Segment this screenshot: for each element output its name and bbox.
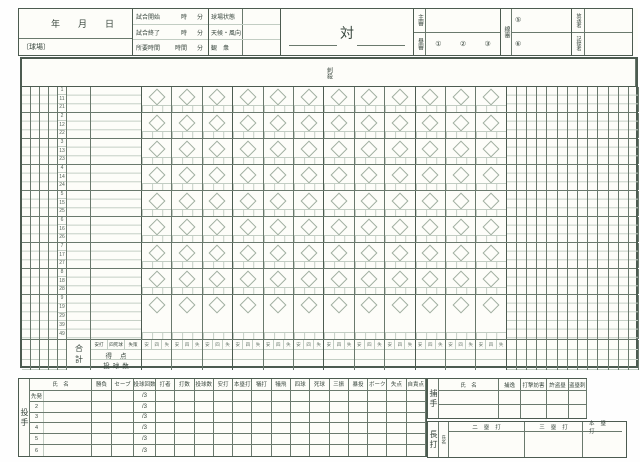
pitcher-stat-cell	[252, 434, 271, 444]
position-cell	[67, 269, 91, 294]
batting-stat-cell	[578, 295, 588, 339]
pitcher-table-main: 氏 名勝負セーブ投球回数打者打数投球数安打本塁打犠打犠飛四球死球三振暴投ボーク失…	[30, 379, 426, 456]
at-bat-cell	[294, 269, 324, 294]
at-bat-cell	[233, 87, 263, 112]
order-number: 29	[58, 313, 66, 322]
diamond-icon	[300, 219, 317, 236]
batting-stat-cell	[578, 243, 588, 268]
batting-stat-cell	[609, 165, 619, 190]
at-bat-cell	[142, 139, 172, 164]
fielding-stat-cell	[49, 191, 58, 216]
count-subrow	[476, 183, 505, 190]
at-bat-cell	[294, 165, 324, 190]
catcher-stat-cell	[569, 405, 587, 419]
batting-stat-cell	[558, 139, 568, 164]
count-subrow	[446, 157, 475, 164]
line-umpire-label: 線審	[501, 9, 512, 55]
pitcher-save-cell	[112, 445, 134, 456]
at-bat-cell	[264, 87, 294, 112]
diamond-icon	[270, 219, 287, 236]
fielding-stat-cell	[49, 165, 58, 190]
count-subrow	[264, 105, 293, 112]
diamond-icon	[179, 115, 196, 132]
count-subrow	[324, 105, 353, 112]
at-bat-cell	[324, 269, 354, 294]
diamond-icon	[482, 193, 499, 210]
pitcher-stat-cell	[310, 413, 329, 423]
summary-right-cell	[598, 340, 608, 370]
catcher-table: 捕手 氏 名捕逸打撃妨害許盗塁盗塁刺	[427, 378, 587, 419]
count-subrow	[172, 332, 201, 339]
batting-stat-cell	[537, 269, 547, 294]
summary-right-cell	[619, 340, 629, 370]
batting-slot-row: 81828	[22, 269, 636, 295]
at-bat-cell	[264, 165, 294, 190]
diamond-icon	[148, 297, 165, 314]
pitcher-wl-cell	[92, 402, 112, 412]
count-subrow	[142, 261, 171, 268]
batting-stat-cell	[598, 243, 608, 268]
catcher-col-header: 捕逸	[499, 379, 521, 390]
tick-label: 四	[152, 340, 162, 349]
batting-stat-cell	[568, 139, 578, 164]
batting-stat-cell	[629, 113, 639, 138]
pitcher-stat-cell	[330, 423, 349, 433]
position-cell	[67, 243, 91, 268]
long-hit-col: 三塁打	[525, 422, 583, 457]
count-subrow	[142, 105, 171, 112]
summary-inning-col: 安四失	[264, 340, 294, 370]
at-bat-cell	[294, 191, 324, 216]
catcher-row	[439, 405, 587, 419]
fielding-stat-cell	[22, 295, 31, 339]
diamond-icon	[270, 297, 287, 314]
summary-legend-col: 安打四死球失策得点投球数	[91, 340, 142, 370]
at-bat-cell	[233, 165, 263, 190]
summary-inning-col: 安四失	[476, 340, 506, 370]
pitcher-stat-cell	[349, 391, 368, 401]
at-bat-cell	[142, 87, 172, 112]
at-bat-cell	[446, 217, 476, 242]
at-bat-cell	[416, 217, 446, 242]
count-subrow	[355, 332, 384, 339]
inning-score-cell	[385, 350, 414, 360]
position-cell	[67, 87, 91, 112]
batting-stat-cell	[537, 113, 547, 138]
at-bat-cell	[233, 243, 263, 268]
batter-name-cell	[91, 139, 142, 164]
diamond-icon	[209, 141, 226, 158]
game-time-label: 試合終了	[136, 28, 166, 37]
at-bat-cell	[142, 269, 172, 294]
condition-label: 観 衆	[209, 40, 243, 55]
batting-slot-row: 31323	[22, 139, 636, 165]
count-subrow	[264, 131, 293, 138]
diamond-icon	[179, 219, 196, 236]
count-subrow	[385, 131, 414, 138]
batting-stat-cell	[588, 243, 598, 268]
at-bat-cell	[203, 113, 233, 138]
count-subrow	[172, 235, 201, 242]
diamond-icon	[179, 297, 196, 314]
batting-stat-cell	[588, 191, 598, 216]
catcher-col-header: 盗塁刺	[569, 379, 587, 390]
tick-label: 失	[193, 340, 202, 349]
batting-stat-cell	[547, 87, 557, 112]
count-subrow	[416, 157, 445, 164]
diamond-icon	[239, 271, 256, 288]
diamond-icon	[300, 167, 317, 184]
position-cell	[67, 295, 91, 339]
batting-stat-cell	[568, 165, 578, 190]
count-subrow	[446, 209, 475, 216]
batting-stat-cell	[527, 139, 537, 164]
diamond-icon	[148, 245, 165, 262]
pitcher-col-header: 犠打	[252, 379, 271, 390]
batting-stat-cell	[537, 191, 547, 216]
at-bat-cell	[324, 139, 354, 164]
count-subrow	[294, 131, 323, 138]
batting-stat-cell	[568, 87, 578, 112]
at-bat-cell	[385, 295, 415, 339]
at-bat-cell	[324, 295, 354, 339]
at-bat-cell	[324, 165, 354, 190]
tick-label: 安	[142, 340, 152, 349]
diamond-icon	[239, 89, 256, 106]
pitcher-col-header: 暴投	[349, 379, 368, 390]
count-subrow	[385, 332, 414, 339]
inning-pitch-count-cell	[446, 360, 475, 370]
pitcher-row: 6/3	[30, 445, 426, 456]
batter-name-cell	[91, 243, 142, 268]
fielding-stat-cell	[31, 165, 40, 190]
condition-row: 球場状態	[209, 9, 280, 25]
recorders-box: 放送者 記録者	[571, 8, 633, 56]
diamond-icon	[422, 245, 439, 262]
summary-right-cell	[568, 340, 578, 370]
diamond-icon	[209, 297, 226, 314]
order-number: 4	[58, 165, 66, 173]
summary-right-cell	[527, 340, 537, 370]
summary-inning-col: 安四失	[355, 340, 385, 370]
count-subrow	[142, 183, 171, 190]
at-bat-cell	[142, 295, 172, 339]
diamond-icon	[239, 193, 256, 210]
base-umpire-3: ③	[485, 40, 491, 48]
batting-stat-cell	[588, 269, 598, 294]
diamond-icon	[300, 89, 317, 106]
tick-label: 失	[223, 340, 232, 349]
diamond-icon	[391, 219, 408, 236]
count-subrow	[172, 131, 201, 138]
diamond-icon	[331, 219, 348, 236]
pitcher-stat-cell	[214, 434, 233, 444]
at-bat-cell	[264, 269, 294, 294]
long-hits-main: 氏名 二塁打三塁打本塁打	[439, 422, 626, 457]
long-hits-side-label: 長打	[428, 422, 439, 457]
fielding-stat-cell	[22, 269, 31, 294]
pitcher-stat-cell	[291, 413, 310, 423]
at-bat-cell	[385, 165, 415, 190]
count-subrow	[385, 235, 414, 242]
diamond-icon	[179, 89, 196, 106]
pitcher-wl-cell	[92, 413, 112, 423]
position-cell	[67, 191, 91, 216]
catcher-stat-cell	[439, 391, 499, 404]
diamond-icon	[361, 271, 378, 288]
tick-label: 四	[304, 340, 314, 349]
count-subrow	[446, 131, 475, 138]
year-label: 年	[51, 17, 60, 30]
pitcher-stat-cell	[310, 391, 329, 401]
batting-stat-cell	[578, 113, 588, 138]
position-cell	[67, 113, 91, 138]
diamond-icon	[391, 297, 408, 314]
at-bat-cell	[172, 139, 202, 164]
order-number: 16	[58, 225, 66, 233]
batting-stat-cell	[568, 243, 578, 268]
diamond-icon	[422, 115, 439, 132]
fielding-stat-cell	[31, 113, 40, 138]
fielding-stat-cell	[31, 243, 40, 268]
diamond-icon	[452, 193, 469, 210]
fielding-stat-cell	[31, 295, 40, 339]
count-subrow	[294, 287, 323, 294]
order-number: 2	[58, 113, 66, 121]
score-grid: 刺殺補殺失策併殺打順シート先攻123456789101112打席数打数得点安打打…	[20, 57, 638, 368]
order-number: 17	[58, 251, 66, 259]
at-bat-cell	[172, 217, 202, 242]
catcher-col-header: 許盗塁	[547, 379, 569, 390]
minute-unit-label: 分	[197, 12, 203, 21]
at-bat-cell	[476, 243, 506, 268]
pitcher-stat-cell	[175, 391, 194, 401]
count-subrow	[446, 183, 475, 190]
long-hits-name-label: 氏名	[439, 422, 449, 457]
batting-order-cell: 71727	[58, 243, 67, 268]
pitcher-stat-cell	[272, 391, 291, 401]
diamond-icon	[482, 271, 499, 288]
batting-stat-cell	[507, 243, 517, 268]
at-bat-cell	[446, 87, 476, 112]
inning-score-cell	[233, 350, 262, 360]
catcher-stat-cell	[569, 391, 587, 404]
batting-order-cell: 81828	[58, 269, 67, 294]
batting-stat-cell	[507, 269, 517, 294]
left-stat-header: 補殺	[636, 59, 640, 86]
base-umpire-numbers: ① ② ③	[426, 33, 500, 56]
batting-stat-cell	[609, 217, 619, 242]
fielding-stat-cell	[40, 269, 49, 294]
batting-stat-cell	[578, 217, 588, 242]
pitcher-stat-cell	[291, 423, 310, 433]
diamond-icon	[422, 141, 439, 158]
inning-pitch-count-cell	[355, 360, 384, 370]
diamond-icon	[239, 245, 256, 262]
inning-score-cell	[142, 350, 171, 360]
diamond-icon	[361, 89, 378, 106]
diamond-icon	[361, 141, 378, 158]
inning-pitch-count-cell	[385, 360, 414, 370]
batting-stat-cell	[527, 191, 537, 216]
pitcher-stat-cell	[330, 434, 349, 444]
batting-stat-cell	[629, 165, 639, 190]
batting-stat-cell	[547, 243, 557, 268]
game-time-row: 所要時間時間分	[133, 40, 208, 55]
date-row: 年 月 日	[19, 9, 132, 39]
count-subrow	[172, 287, 201, 294]
fielding-stat-cell	[31, 269, 40, 294]
count-subrow	[264, 183, 293, 190]
fielding-stat-cell	[22, 191, 31, 216]
diamond-icon	[422, 193, 439, 210]
count-subrow	[142, 332, 171, 339]
versus-label: 対	[340, 23, 354, 43]
diamond-icon	[482, 245, 499, 262]
fielding-stat-cell	[22, 87, 31, 112]
summary-stat-cell	[31, 340, 40, 370]
legend-label: 安打	[91, 340, 108, 349]
order-number: 3	[58, 139, 66, 147]
game-time-row: 試合終了時分	[133, 25, 208, 41]
count-subrow	[294, 209, 323, 216]
pitcher-stat-cell	[291, 434, 310, 444]
team1-underline	[289, 45, 337, 46]
game-time-label: 試合開始	[136, 12, 166, 21]
pitcher-stat-cell	[387, 423, 406, 433]
pitcher-save-cell	[112, 413, 134, 423]
pitcher-stat-cell	[368, 423, 387, 433]
at-bat-cell	[233, 217, 263, 242]
batting-stat-cell	[558, 113, 568, 138]
batter-name-cell	[91, 269, 142, 294]
pitcher-stat-cell	[214, 423, 233, 433]
fielding-stat-cell	[31, 191, 40, 216]
batting-slot-row: 71727	[22, 243, 636, 269]
inning-pitch-count-cell	[142, 360, 171, 370]
diamond-icon	[482, 141, 499, 158]
at-bat-cell	[324, 191, 354, 216]
at-bat-cell	[355, 295, 385, 339]
batting-slot-row: 21222	[22, 113, 636, 139]
order-number: 28	[58, 286, 66, 294]
batting-stat-cell	[568, 295, 578, 339]
at-bat-cell	[172, 87, 202, 112]
at-bat-cell	[324, 243, 354, 268]
count-subrow	[476, 105, 505, 112]
batting-stat-cell	[507, 139, 517, 164]
at-bat-cell	[476, 191, 506, 216]
diamond-icon	[300, 297, 317, 314]
count-subrow	[476, 157, 505, 164]
long-hit-header: 三塁打	[525, 422, 582, 432]
diamond-icon	[452, 115, 469, 132]
batting-stat-cell	[619, 191, 629, 216]
batting-slot-row: 11121	[22, 87, 636, 113]
batting-stat-cell	[547, 139, 557, 164]
order-number: 11	[58, 95, 66, 103]
batting-stat-cell	[558, 191, 568, 216]
pitcher-stat-cell	[407, 402, 426, 412]
at-bat-cell	[416, 243, 446, 268]
batting-stat-cell	[598, 139, 608, 164]
pitcher-stat-cell	[156, 445, 175, 456]
stadium-row: 〔球場〕	[19, 39, 132, 55]
catcher-col-header: 氏 名	[439, 379, 499, 390]
batting-stat-cell	[547, 295, 557, 339]
batting-stat-cell	[527, 165, 537, 190]
fielding-stat-cell	[40, 113, 49, 138]
at-bat-cell	[142, 217, 172, 242]
fielding-stat-cell	[22, 217, 31, 242]
pitcher-ip-cell: /3	[134, 445, 156, 456]
count-subrow	[476, 235, 505, 242]
inning-score-cell	[264, 350, 293, 360]
diamond-icon	[209, 89, 226, 106]
order-number: 39	[58, 321, 66, 330]
batting-stat-cell	[547, 217, 557, 242]
pitcher-stat-cell	[175, 423, 194, 433]
count-subrow	[233, 157, 262, 164]
batter-name-cell	[91, 87, 142, 112]
tick-label: 四	[213, 340, 223, 349]
fielding-stat-cell	[31, 139, 40, 164]
count-subrow	[385, 261, 414, 268]
diamond-icon	[179, 193, 196, 210]
count-subrow	[416, 105, 445, 112]
summary-right-cell	[547, 340, 557, 370]
count-subrow	[142, 235, 171, 242]
batting-stat-cell	[558, 165, 568, 190]
diamond-icon	[209, 115, 226, 132]
summary-inning-col: 安四失	[416, 340, 446, 370]
at-bat-cell	[142, 191, 172, 216]
diamond-icon	[361, 193, 378, 210]
pitcher-stat-cell	[349, 413, 368, 423]
at-bat-cell	[324, 113, 354, 138]
batting-stat-cell	[507, 191, 517, 216]
pitcher-stat-cell	[387, 445, 406, 456]
diamond-icon	[270, 167, 287, 184]
order-number: 24	[58, 182, 66, 190]
at-bat-cell	[355, 243, 385, 268]
count-subrow	[233, 209, 262, 216]
at-bat-cell	[142, 165, 172, 190]
order-number: 23	[58, 156, 66, 164]
catcher-stat-cell	[499, 405, 521, 419]
diamond-icon	[361, 167, 378, 184]
pitcher-stat-cell	[330, 445, 349, 456]
batting-stat-cell	[507, 87, 517, 112]
pitcher-col-header: 自責点	[407, 379, 426, 390]
at-bat-cell	[476, 165, 506, 190]
pitcher-stat-cell	[233, 423, 252, 433]
inning-tick-row: 安四失	[476, 340, 505, 350]
batting-stat-cell	[578, 87, 588, 112]
diamond-icon	[331, 141, 348, 158]
batting-stat-cell	[619, 217, 629, 242]
pitcher-wl-cell	[92, 445, 112, 456]
at-bat-cell	[476, 295, 506, 339]
fielding-stat-cell	[40, 87, 49, 112]
tick-label: 失	[375, 340, 384, 349]
diamond-icon	[239, 167, 256, 184]
diamond-icon	[452, 245, 469, 262]
diamond-icon	[209, 219, 226, 236]
batting-stat-cell	[578, 139, 588, 164]
batting-stat-cell	[537, 139, 547, 164]
diamond-icon	[452, 297, 469, 314]
